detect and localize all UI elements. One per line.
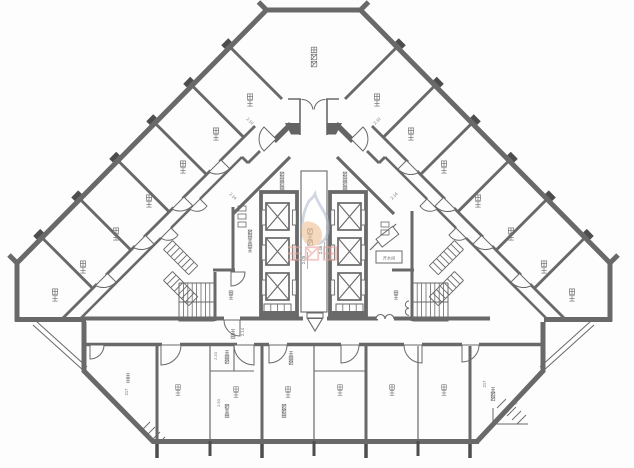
svg-text:2.20: 2.20 [213, 351, 218, 360]
svg-text:217: 217 [482, 380, 487, 388]
svg-text:开水间: 开水间 [383, 255, 396, 262]
svg-text:217: 217 [124, 388, 129, 396]
svg-text:2.14: 2.14 [240, 327, 245, 336]
svg-text:2.50: 2.50 [216, 398, 221, 407]
